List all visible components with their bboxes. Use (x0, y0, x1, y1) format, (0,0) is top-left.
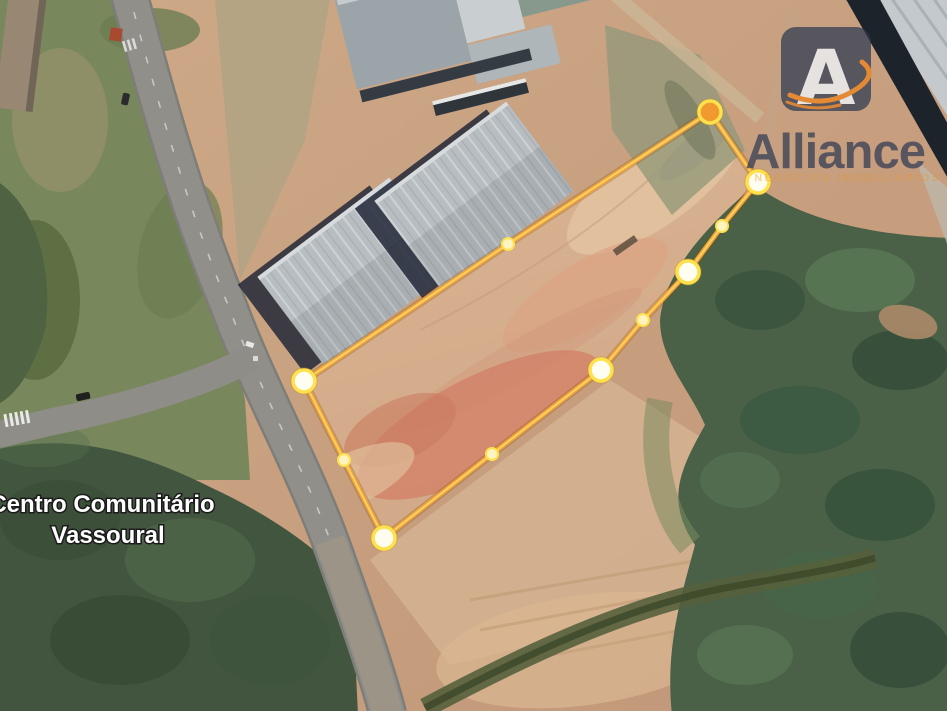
parcel-vertex (637, 314, 649, 326)
place-label-line1: Centro Comunitário (0, 491, 215, 518)
parcel-vertex (502, 238, 514, 250)
red-roof-hut (109, 27, 123, 42)
satellite-map-screenshot: A Alliance NEGÓCIOS IMOBILIÁRIOS Centro … (0, 0, 947, 711)
parcel-vertex (338, 454, 350, 466)
satellite-map-canvas: A Alliance NEGÓCIOS IMOBILIÁRIOS Centro … (0, 0, 947, 711)
brand-name: Alliance (745, 125, 925, 179)
parcel-vertex (293, 370, 315, 392)
road-sign-2 (253, 356, 258, 361)
place-label-line2: Vassoural (51, 522, 164, 549)
parcel-vertex (373, 527, 395, 549)
parcel-vertex (699, 101, 721, 123)
parcel-vertex (486, 448, 498, 460)
parcel-vertex (716, 220, 728, 232)
parcel-vertex (677, 261, 699, 283)
brand-tagline: NEGÓCIOS IMOBILIÁRIOS (754, 171, 941, 184)
parcel-vertex (590, 359, 612, 381)
